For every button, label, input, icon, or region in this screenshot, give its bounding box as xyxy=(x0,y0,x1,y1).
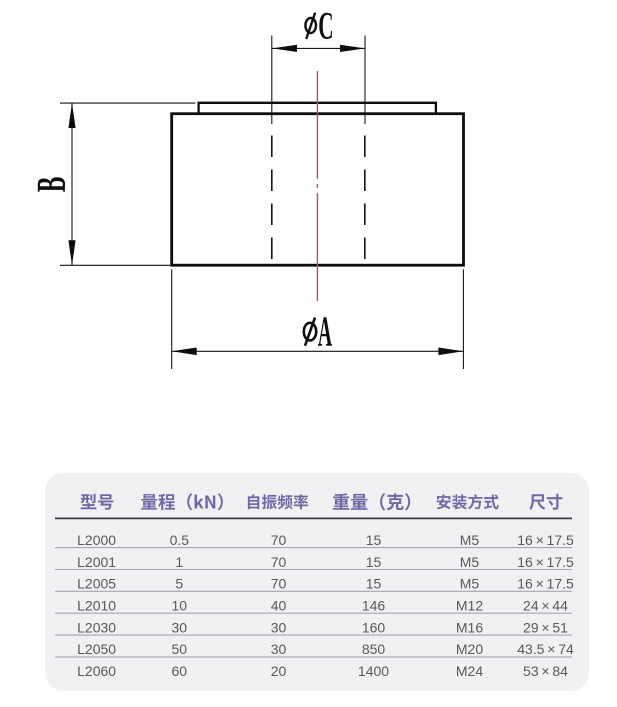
svg-text:15: 15 xyxy=(366,576,382,592)
svg-text:M5: M5 xyxy=(460,576,480,592)
svg-text:70: 70 xyxy=(271,554,287,570)
svg-text:15: 15 xyxy=(366,554,382,570)
svg-text:43.5 × 74: 43.5 × 74 xyxy=(517,641,574,657)
svg-text:15: 15 xyxy=(366,532,382,548)
svg-text:16 × 17.5: 16 × 17.5 xyxy=(517,576,574,592)
svg-text:L2060: L2060 xyxy=(77,663,116,679)
svg-text:M16: M16 xyxy=(456,619,483,635)
svg-text:16 × 17.5: 16 × 17.5 xyxy=(517,554,574,570)
svg-text:L2030: L2030 xyxy=(77,619,116,635)
svg-text:70: 70 xyxy=(271,532,287,548)
svg-text:M12: M12 xyxy=(456,598,483,614)
svg-text:L2000: L2000 xyxy=(77,532,116,548)
svg-text:16 × 17.5: 16 × 17.5 xyxy=(517,532,574,548)
svg-text:30: 30 xyxy=(271,641,287,657)
svg-text:160: 160 xyxy=(362,619,386,635)
svg-text:60: 60 xyxy=(172,663,188,679)
svg-text:10: 10 xyxy=(172,598,188,614)
svg-text:30: 30 xyxy=(172,619,188,635)
svg-text:0.5: 0.5 xyxy=(170,532,190,548)
svg-text:L2001: L2001 xyxy=(77,554,116,570)
svg-text:L2005: L2005 xyxy=(77,576,116,592)
svg-text:L2050: L2050 xyxy=(77,641,116,657)
svg-text:30: 30 xyxy=(271,619,287,635)
svg-text:146: 146 xyxy=(362,598,386,614)
svg-text:20: 20 xyxy=(271,663,287,679)
svg-text:40: 40 xyxy=(271,598,287,614)
svg-text:1: 1 xyxy=(175,554,183,570)
svg-text:M5: M5 xyxy=(460,532,480,548)
svg-text:70: 70 xyxy=(271,576,287,592)
svg-text:24 × 44: 24 × 44 xyxy=(523,598,568,614)
svg-text:29 × 51: 29 × 51 xyxy=(523,619,568,635)
svg-text:53 × 84: 53 × 84 xyxy=(523,663,568,679)
svg-text:1400: 1400 xyxy=(358,663,389,679)
svg-text:L2010: L2010 xyxy=(77,598,116,614)
svg-text:M20: M20 xyxy=(456,641,483,657)
svg-text:5: 5 xyxy=(175,576,183,592)
svg-text:850: 850 xyxy=(362,641,386,657)
svg-text:M24: M24 xyxy=(456,663,483,679)
svg-text:50: 50 xyxy=(172,641,188,657)
svg-text:M5: M5 xyxy=(460,554,480,570)
